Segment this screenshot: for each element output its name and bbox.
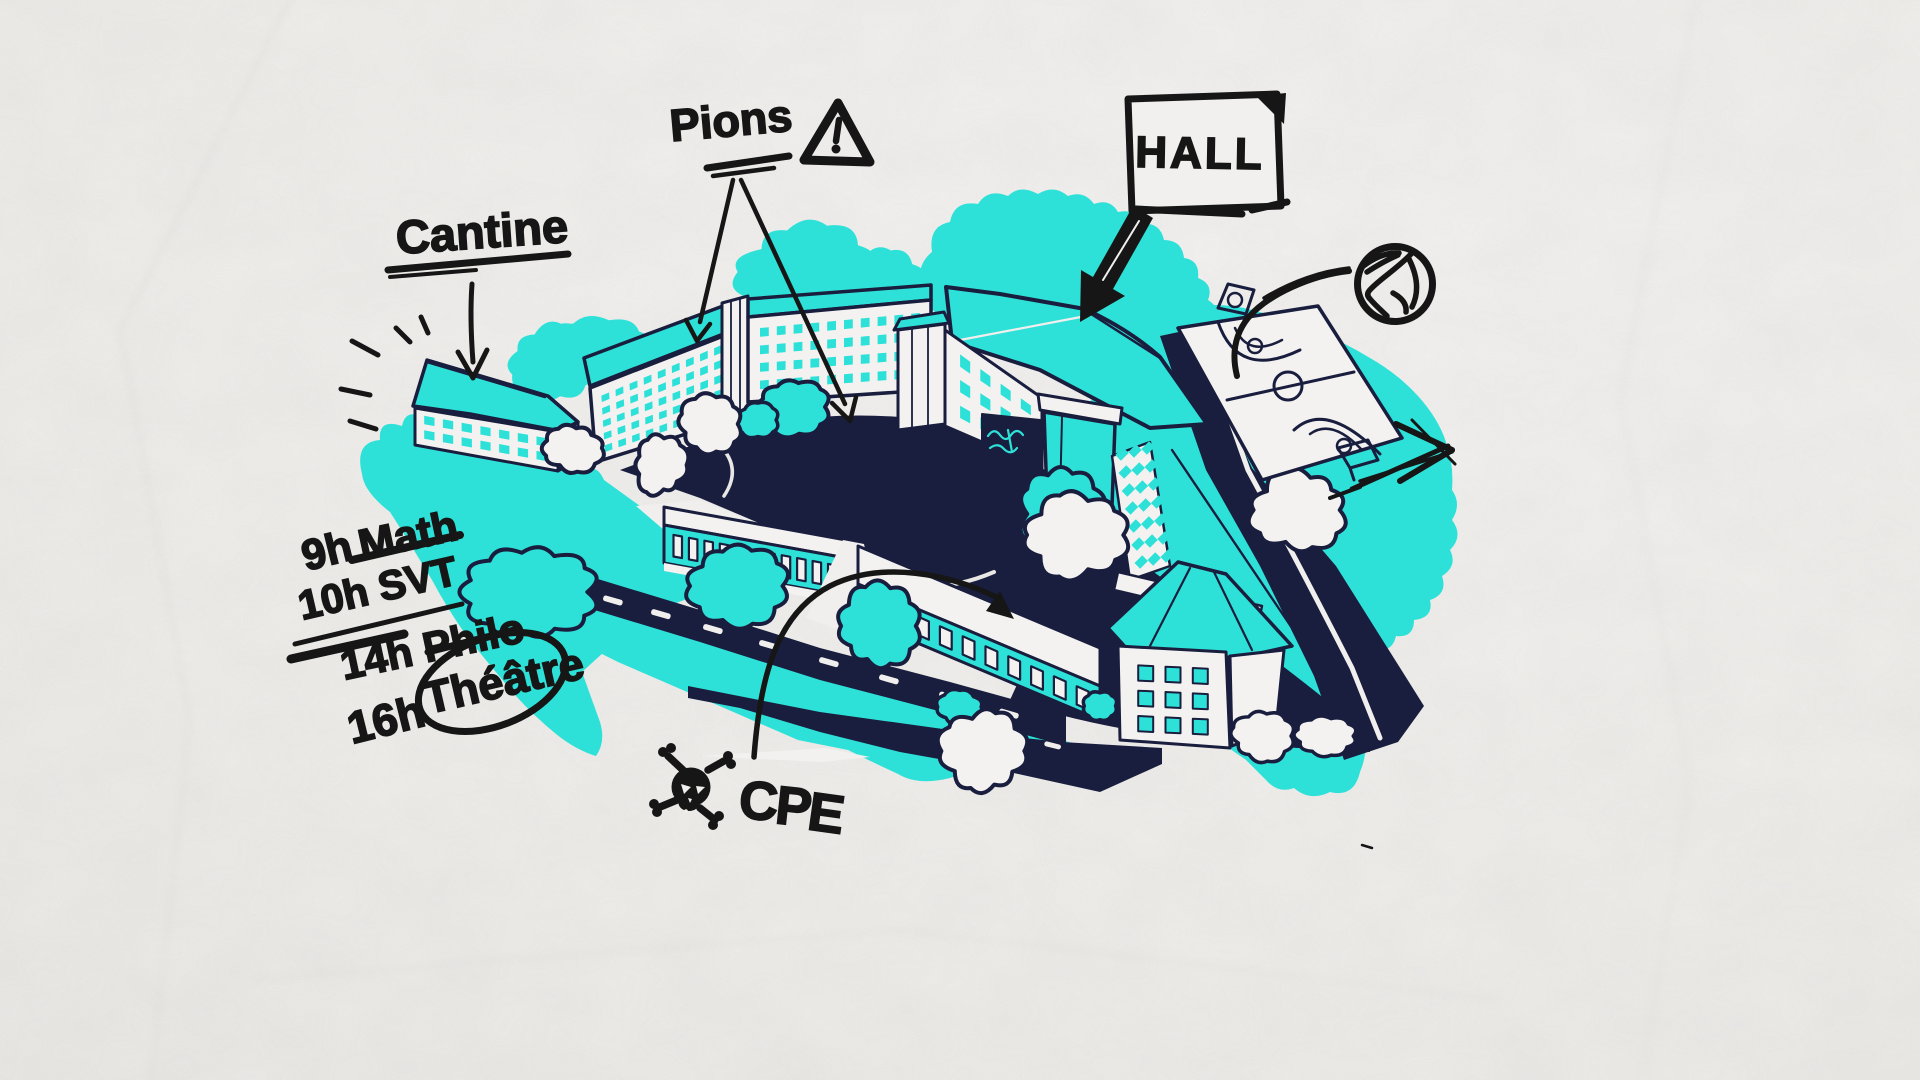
svg-text:Pions: Pions [668, 90, 795, 151]
svg-text:HALL: HALL [1135, 128, 1265, 179]
